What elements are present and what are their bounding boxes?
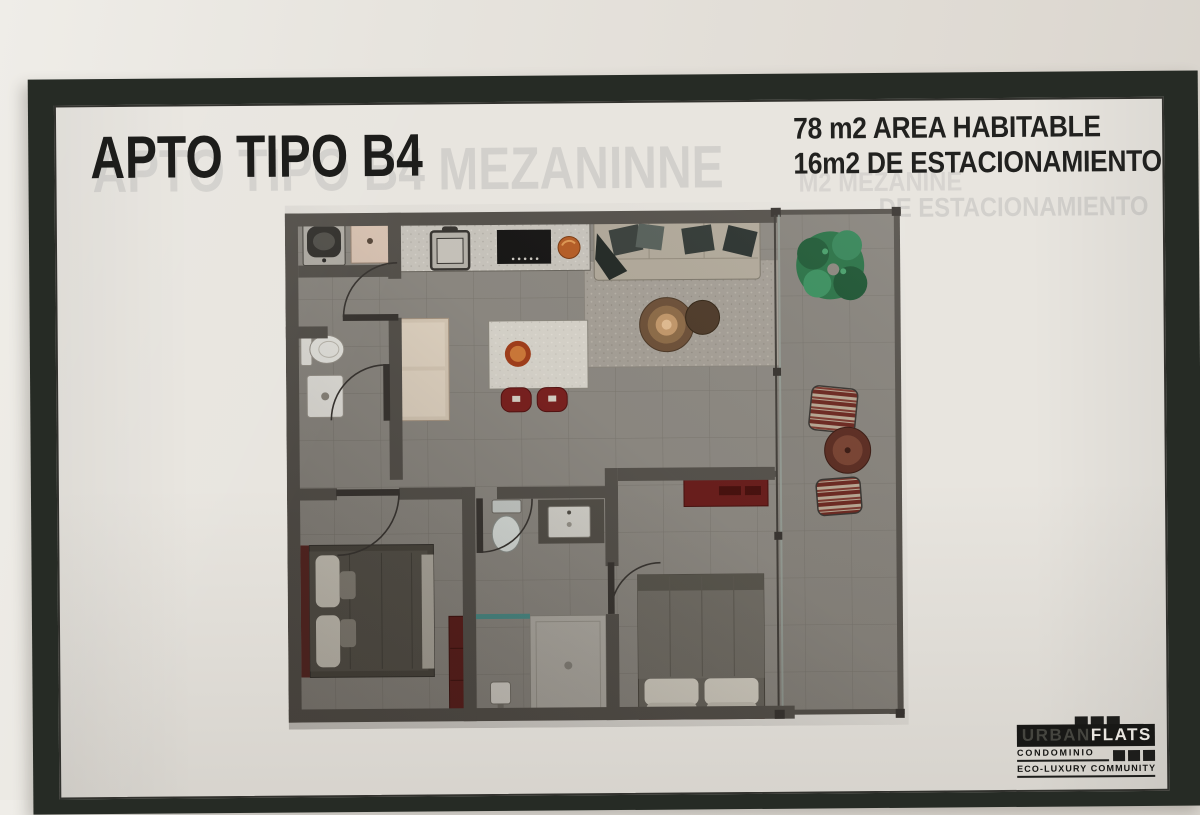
photo-vignette (285, 201, 909, 730)
logo-brand-urban: URBAN (1022, 725, 1091, 746)
poster-frame: APTO TIPO B4 MEZANINNE APTO TIPO B4 78 m… (28, 70, 1200, 814)
area-stats-ghost-2: DE ESTACIONAMIENTO (879, 191, 1149, 224)
estacionamiento-text: 16m2 DE ESTACIONAMIENTO (793, 144, 1163, 182)
floor-plan (285, 201, 909, 730)
logo-brand-bar: URBAN FLATS (1017, 724, 1155, 747)
photo-background: { "poster": { "title": "APTO TIPO B4", "… (0, 0, 1200, 800)
logo-brand-flats: FLATS (1091, 725, 1152, 745)
logo-tagline: ECO-LUXURY COMMUNITY (1017, 761, 1155, 778)
urbanflats-logo: URBAN FLATS CONDOMINIO ECO-LUXURY COMMUN… (1017, 724, 1155, 778)
poster-title: APTO TIPO B4 (90, 121, 423, 193)
area-habitable-text: 78 m2 AREA HABITABLE (793, 109, 1163, 147)
poster-page: APTO TIPO B4 MEZANINNE APTO TIPO B4 78 m… (54, 97, 1169, 800)
area-stats: 78 m2 AREA HABITABLE 16m2 DE ESTACIONAMI… (793, 109, 1163, 182)
logo-buildings-icon-bottom (1113, 750, 1155, 761)
logo-subtitle: CONDOMINIO (1017, 747, 1109, 762)
